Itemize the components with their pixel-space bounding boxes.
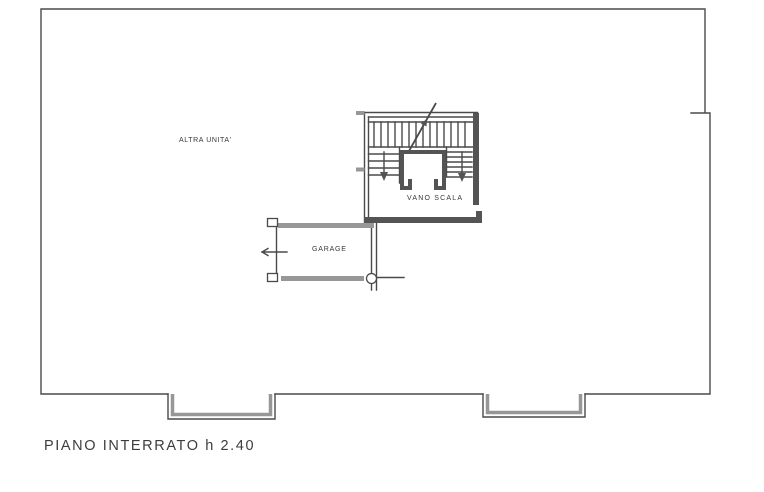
stairwell-bottom-wall-upturn [476,211,482,218]
garage-bottom-wall [281,276,364,281]
door-knob-circle [367,274,377,284]
stair-right-flight-treads [447,147,473,177]
stairwell-top-wall [364,113,478,118]
stair-core-foot-left-stub [408,179,412,190]
stair-core-top [400,150,446,154]
plan-caption: PIANO INTERRATO h 2.40 [44,438,255,454]
vano-scala-label: VANO SCALA [407,195,463,202]
floor-plan-drawing [0,0,764,492]
stair-top-flight-treads [374,122,465,147]
garage-top-wall [278,223,374,228]
stairwell-right-wall [473,113,479,205]
stair-core-right [442,150,446,190]
building-outline [41,9,710,394]
stairwell-wall-tick-mid [356,168,365,172]
garage-label: GARAGE [312,246,347,253]
stair-arrow-left-head [380,172,388,181]
plan-linework [41,9,710,419]
altra-unita-label: ALTRA UNITA' [179,137,232,144]
stairwell-wall-tick-top [356,111,365,115]
stairwell-left-wall [365,113,369,223]
stairwell-bottom-wall [364,217,482,223]
stair-core-left [400,150,404,190]
light-well-inner-walls [173,394,581,415]
garage-wall-cap-bottom [268,274,278,282]
light-well-right-inner [488,394,581,413]
floor-plan-page: ALTRA UNITA' VANO SCALA GARAGE PIANO INT… [0,0,764,492]
gray-walls [278,111,374,281]
garage-wall-cap-top [268,219,278,227]
light-well-left-inner [173,394,271,415]
garage-entrance-arrow [262,249,287,256]
stair-core-foot-right-stub [434,179,438,190]
